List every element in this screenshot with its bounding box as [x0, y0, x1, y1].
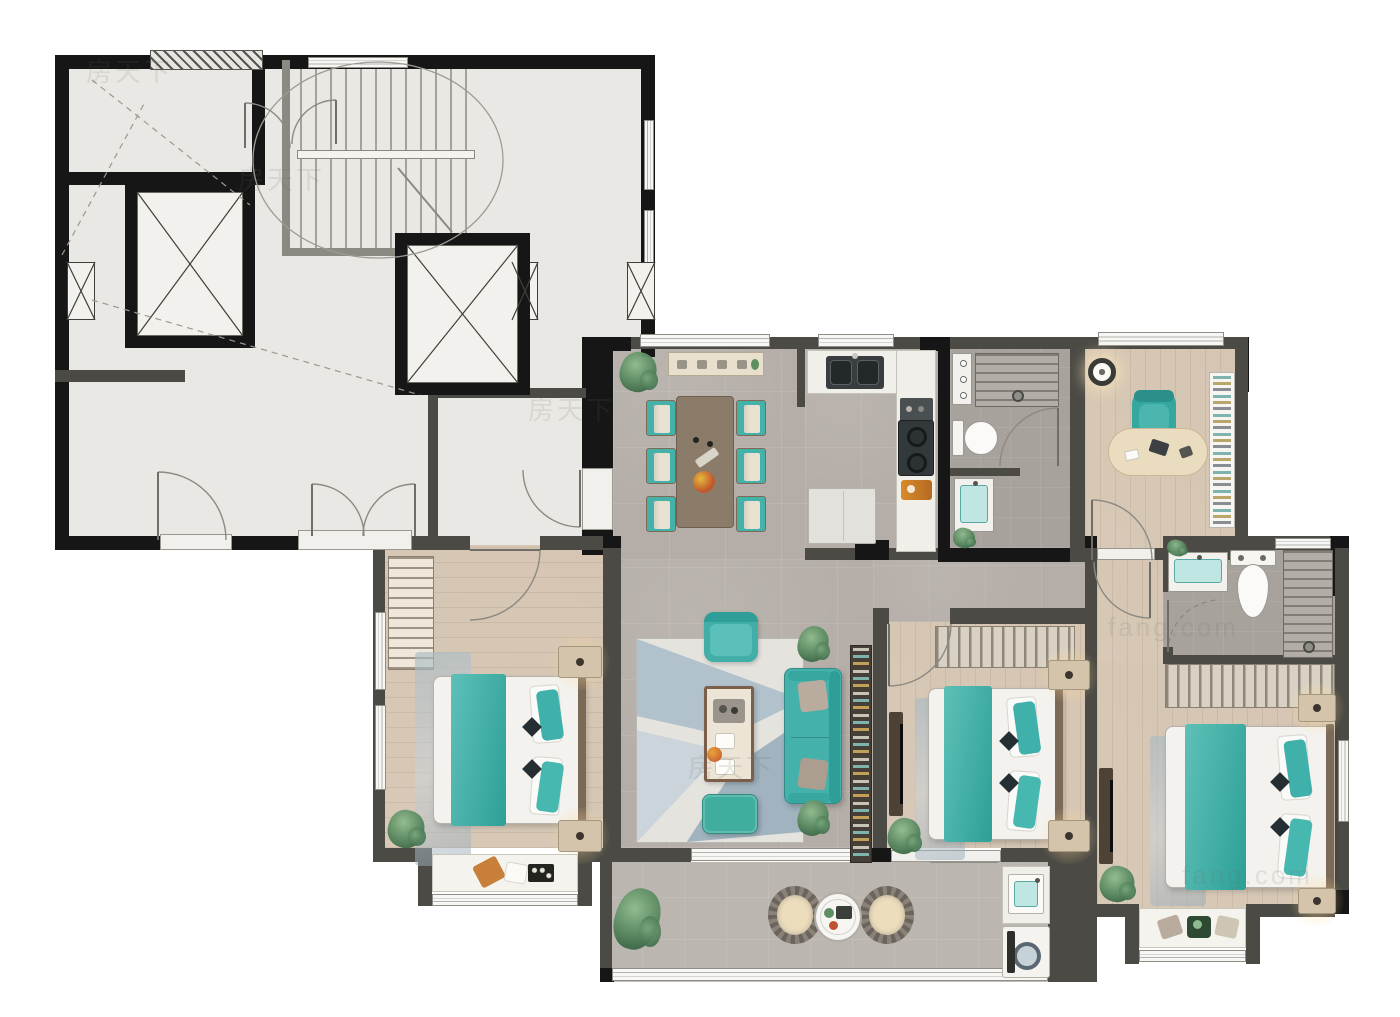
window — [644, 210, 654, 270]
chair-back — [704, 612, 758, 622]
chair-back — [1134, 390, 1174, 402]
wall — [613, 337, 631, 351]
bath2-plant — [1167, 540, 1187, 556]
decor-item — [697, 360, 707, 369]
window — [612, 968, 1048, 981]
balcony-chair — [860, 886, 914, 944]
bed-throw — [944, 686, 992, 842]
window — [375, 612, 386, 690]
living-armchair — [704, 612, 758, 662]
threshold — [160, 534, 232, 550]
tray — [713, 699, 745, 723]
faucet — [1197, 555, 1202, 560]
plant-foliage — [965, 537, 976, 547]
decor-item — [907, 485, 915, 493]
chair-seat — [869, 895, 906, 934]
decor-item — [829, 921, 838, 930]
master-bay-seat — [1139, 908, 1246, 948]
decor-item — [677, 360, 687, 369]
toilet-tank — [952, 420, 964, 456]
plant-foliage — [639, 916, 661, 947]
wall — [950, 468, 1020, 476]
dining-chair — [646, 448, 676, 484]
bath2-toilet — [1228, 550, 1278, 620]
knob — [960, 392, 967, 399]
chair-seat — [777, 895, 814, 934]
laundry-sink — [1008, 874, 1044, 914]
bedroom-middle-bed — [928, 688, 1062, 840]
dining-plant — [620, 352, 656, 392]
plant-foliage — [815, 642, 830, 660]
wall — [950, 337, 1070, 349]
window — [644, 120, 654, 190]
decor-item — [715, 733, 735, 749]
sofa-back — [829, 671, 840, 803]
wall — [282, 60, 290, 256]
decor-item — [737, 360, 747, 369]
wall — [950, 608, 1097, 624]
bath1-toilet — [952, 418, 1000, 458]
knob — [906, 406, 912, 412]
window — [1139, 950, 1246, 962]
bed-throw — [451, 674, 506, 826]
plant-foliage — [408, 827, 426, 846]
watermark: fang.com — [1182, 860, 1313, 891]
pillow — [1156, 914, 1183, 940]
sofa-pillow — [797, 679, 828, 712]
living-sofa — [784, 668, 842, 804]
threshold — [298, 530, 412, 550]
tv-screen — [1110, 780, 1113, 852]
pillow — [503, 861, 528, 885]
master-plant — [1100, 866, 1134, 902]
chair-cushion — [654, 405, 670, 433]
decor-item — [1193, 920, 1202, 929]
nightstand — [1048, 660, 1090, 690]
bedroom-middle-plant — [888, 818, 920, 854]
window — [640, 334, 770, 347]
window — [818, 334, 894, 347]
decor-item — [693, 437, 699, 443]
knob — [918, 406, 924, 412]
window — [1275, 538, 1331, 549]
vent-shaft — [67, 262, 95, 320]
decor-fruit — [693, 471, 715, 493]
washer-drum — [1013, 942, 1041, 970]
watermark: 房天下 — [528, 390, 615, 427]
dining-chair — [736, 448, 766, 484]
window — [691, 848, 871, 861]
wall — [603, 536, 621, 548]
pillow — [1214, 915, 1240, 939]
window — [375, 705, 386, 790]
dining-chair — [646, 400, 676, 436]
shower-head — [1012, 390, 1024, 402]
bedroom-middle-tv — [889, 712, 903, 816]
dining-chair — [646, 496, 676, 532]
wall — [1085, 536, 1097, 548]
lamp — [1065, 671, 1073, 679]
nightstand — [1298, 888, 1336, 914]
wall — [1246, 904, 1260, 964]
decor-item — [731, 707, 738, 714]
decor-item — [1178, 446, 1193, 460]
living-ottoman — [702, 794, 758, 834]
elevator-car — [137, 192, 243, 336]
books — [853, 648, 869, 860]
wall — [600, 848, 612, 982]
wall — [1070, 337, 1085, 560]
watermark: fang.com — [1108, 612, 1239, 643]
wall — [428, 388, 438, 546]
window — [432, 894, 578, 906]
basin — [1014, 881, 1038, 907]
decor-item — [719, 705, 727, 713]
wall — [873, 624, 887, 848]
knob — [1260, 555, 1266, 561]
wall — [603, 545, 621, 848]
fridge-divider — [843, 491, 844, 541]
lamp — [1065, 832, 1073, 840]
bath1-shelf — [952, 353, 972, 405]
watermark: 房天下 — [688, 748, 775, 785]
washer-panel — [1007, 931, 1015, 973]
lamp — [1313, 704, 1321, 712]
bath2-shower — [1283, 550, 1333, 658]
lamp — [1313, 897, 1321, 905]
shower-head — [1303, 641, 1315, 653]
chair-cushion — [744, 405, 760, 433]
lamp-core — [1099, 369, 1104, 374]
nightstand — [558, 820, 602, 852]
window — [1338, 740, 1349, 822]
wall — [797, 345, 805, 407]
chair-cushion — [654, 453, 670, 481]
bath2-vanity — [1168, 552, 1228, 592]
dining-table — [676, 396, 734, 528]
wall — [1335, 548, 1349, 910]
wall — [1235, 337, 1248, 560]
window — [308, 57, 408, 68]
toilet-bowl — [1237, 564, 1269, 618]
knob — [960, 360, 967, 367]
decor-item — [695, 447, 720, 468]
laptop — [1149, 438, 1170, 456]
bedroom-left-bay-seat — [432, 854, 578, 892]
wall — [1125, 904, 1139, 964]
wall — [938, 337, 950, 560]
chair-cushion — [744, 501, 760, 529]
plant-foliage — [906, 834, 922, 852]
study-bookshelf — [1209, 372, 1235, 528]
sink-basin — [857, 360, 879, 385]
headboard — [1326, 724, 1334, 890]
wall — [938, 548, 1070, 562]
living-plant — [798, 626, 828, 662]
faucet — [973, 481, 978, 486]
stair-landing-rail — [297, 150, 475, 159]
lamp — [576, 832, 584, 840]
plant-foliage — [815, 816, 830, 834]
living-bookshelf — [850, 645, 872, 863]
living-plant — [798, 800, 828, 836]
tv-screen — [900, 724, 903, 804]
lamp — [576, 658, 584, 666]
books — [1213, 376, 1231, 524]
knob — [1238, 555, 1244, 561]
vent-shaft — [627, 262, 655, 320]
elevator-car — [407, 245, 518, 383]
plant-foliage — [1178, 547, 1188, 555]
tray — [836, 906, 852, 919]
plant-foliage — [1119, 882, 1136, 900]
master-hall-floor — [1097, 548, 1163, 662]
wall — [55, 370, 185, 382]
washing-machine — [1002, 926, 1050, 978]
basin — [960, 485, 988, 523]
chair-cushion — [744, 453, 760, 481]
kitchen-cutting-board — [901, 480, 932, 500]
master-tv — [1099, 768, 1113, 864]
bedroom-left-plant — [388, 810, 424, 848]
balcony-plant — [615, 888, 659, 950]
kitchen-sink — [826, 356, 884, 389]
dining-chair — [736, 400, 766, 436]
basin — [1174, 559, 1222, 583]
dining-sideboard — [668, 352, 764, 376]
wall — [611, 848, 691, 862]
decor-item — [707, 441, 713, 447]
kitchen-fridge — [808, 488, 876, 544]
faucet — [1035, 878, 1040, 883]
faucet — [852, 353, 858, 359]
window — [1098, 332, 1224, 346]
plant-foliage — [606, 883, 667, 956]
nightstand — [558, 646, 602, 678]
wall — [1048, 848, 1097, 982]
bath1-plant — [953, 528, 975, 548]
knob — [960, 376, 967, 383]
decor-item — [824, 908, 834, 918]
balcony-table — [814, 892, 862, 942]
sofa-seat-line — [791, 737, 829, 738]
watermark: 房天下 — [238, 160, 325, 197]
study-desk — [1108, 428, 1208, 476]
dining-chair — [736, 496, 766, 532]
floor-plan-canvas: 房天下房天下房天下房天下fang.comfang.com — [0, 0, 1400, 1017]
paper — [1124, 448, 1140, 461]
pillow — [472, 856, 506, 889]
bath1-shower — [975, 353, 1059, 407]
bath1-vanity — [954, 478, 994, 532]
chair-cushion — [654, 501, 670, 529]
kitchen-stove — [898, 420, 934, 476]
watermark: 房天下 — [86, 52, 173, 89]
burner — [907, 427, 927, 447]
toilet-bowl — [964, 421, 998, 455]
wall — [873, 608, 889, 624]
nightstand — [1298, 694, 1336, 722]
wall — [373, 536, 385, 855]
sink-basin — [830, 360, 852, 385]
decor-item — [717, 360, 727, 369]
burner — [907, 453, 927, 473]
bedroom-left-bed — [433, 676, 585, 824]
threshold — [582, 468, 613, 530]
headboard — [578, 674, 586, 826]
decor-item — [751, 359, 759, 370]
decor-item — [528, 864, 554, 882]
plant-foliage — [640, 370, 658, 390]
chair-seat — [710, 624, 752, 656]
study-pendant-lamp — [1088, 358, 1116, 386]
nightstand — [1048, 820, 1090, 852]
threshold — [1097, 548, 1155, 560]
sofa-pillow — [797, 757, 828, 790]
